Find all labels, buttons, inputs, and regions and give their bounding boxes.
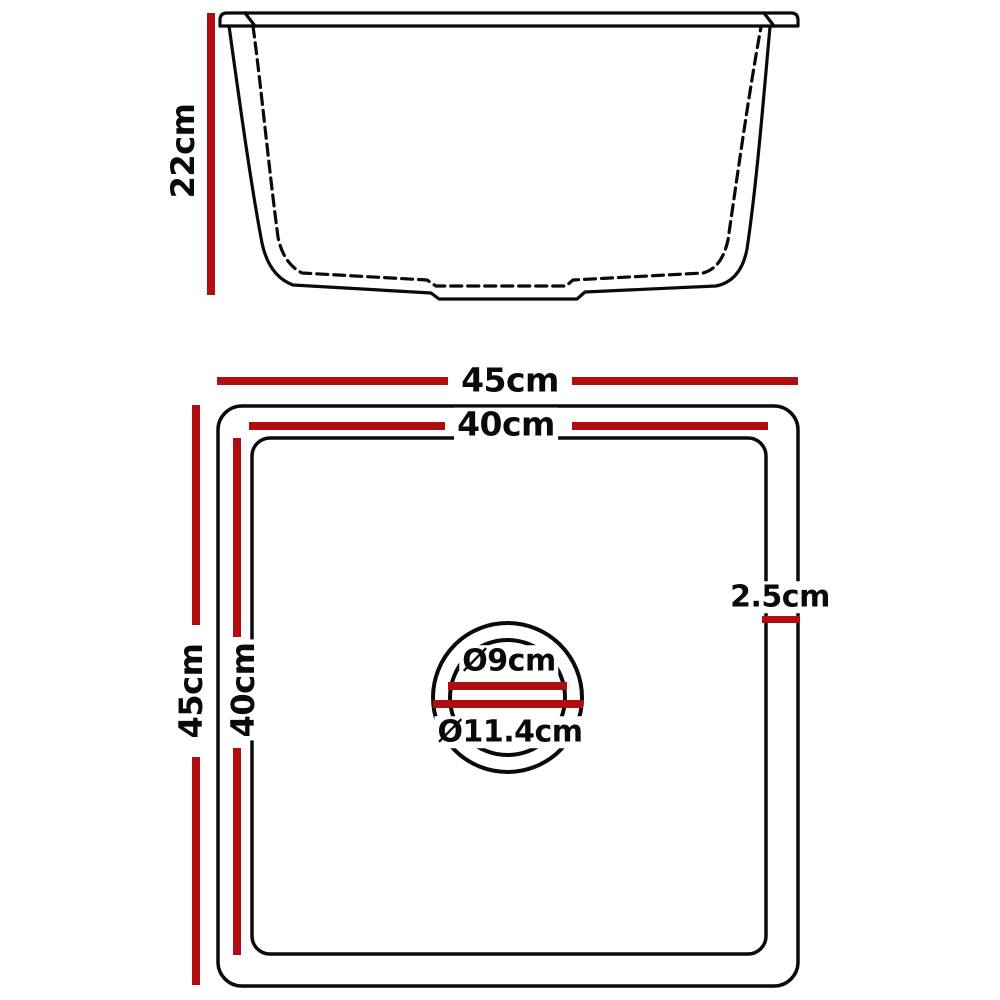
outer-width-dimension-bar-right bbox=[572, 377, 798, 385]
inner-width-dimension-bar-left bbox=[249, 422, 445, 430]
inner-height-dimension-bar-top bbox=[233, 438, 241, 637]
side-view-inner-wall-dashed bbox=[253, 26, 761, 286]
side-view-outer-wall bbox=[229, 26, 770, 299]
inner-width-label: 40cm bbox=[454, 408, 558, 443]
drain-outer-diameter-bar bbox=[433, 700, 583, 708]
edge-thickness-label: 2.5cm bbox=[727, 581, 833, 613]
edge-thickness-dimension-bar bbox=[762, 616, 800, 623]
top-view-inner-edge bbox=[252, 438, 766, 954]
drain-outer-diameter-label: Ø11.4cm bbox=[434, 716, 585, 748]
side-height-label: 22cm bbox=[167, 101, 201, 202]
drain-inner-diameter-bar bbox=[448, 682, 567, 690]
sink-dimensions-diagram: 22cm 45cm 40cm 45cm 40cm 2.5cm Ø9cm Ø11.… bbox=[0, 0, 1000, 1000]
side-view-rim-bevel-left bbox=[245, 13, 255, 26]
side-view-rim-bevel-right bbox=[764, 13, 774, 26]
outer-height-dimension-bar-top bbox=[192, 405, 200, 625]
sink-line-art bbox=[0, 0, 1000, 1000]
inner-height-dimension-bar-bottom bbox=[233, 748, 241, 955]
outer-width-dimension-bar-left bbox=[217, 377, 448, 385]
outer-height-dimension-bar-bottom bbox=[192, 757, 200, 985]
side-view-rim-outline bbox=[220, 13, 798, 26]
drain-inner-diameter-label: Ø9cm bbox=[459, 645, 558, 677]
side-height-dimension-bar bbox=[207, 13, 215, 295]
inner-width-dimension-bar-right bbox=[572, 422, 768, 430]
inner-height-label: 40cm bbox=[227, 640, 261, 741]
outer-height-label: 45cm bbox=[175, 641, 209, 742]
outer-width-label: 45cm bbox=[458, 364, 562, 399]
top-view-outer-edge bbox=[218, 406, 798, 986]
